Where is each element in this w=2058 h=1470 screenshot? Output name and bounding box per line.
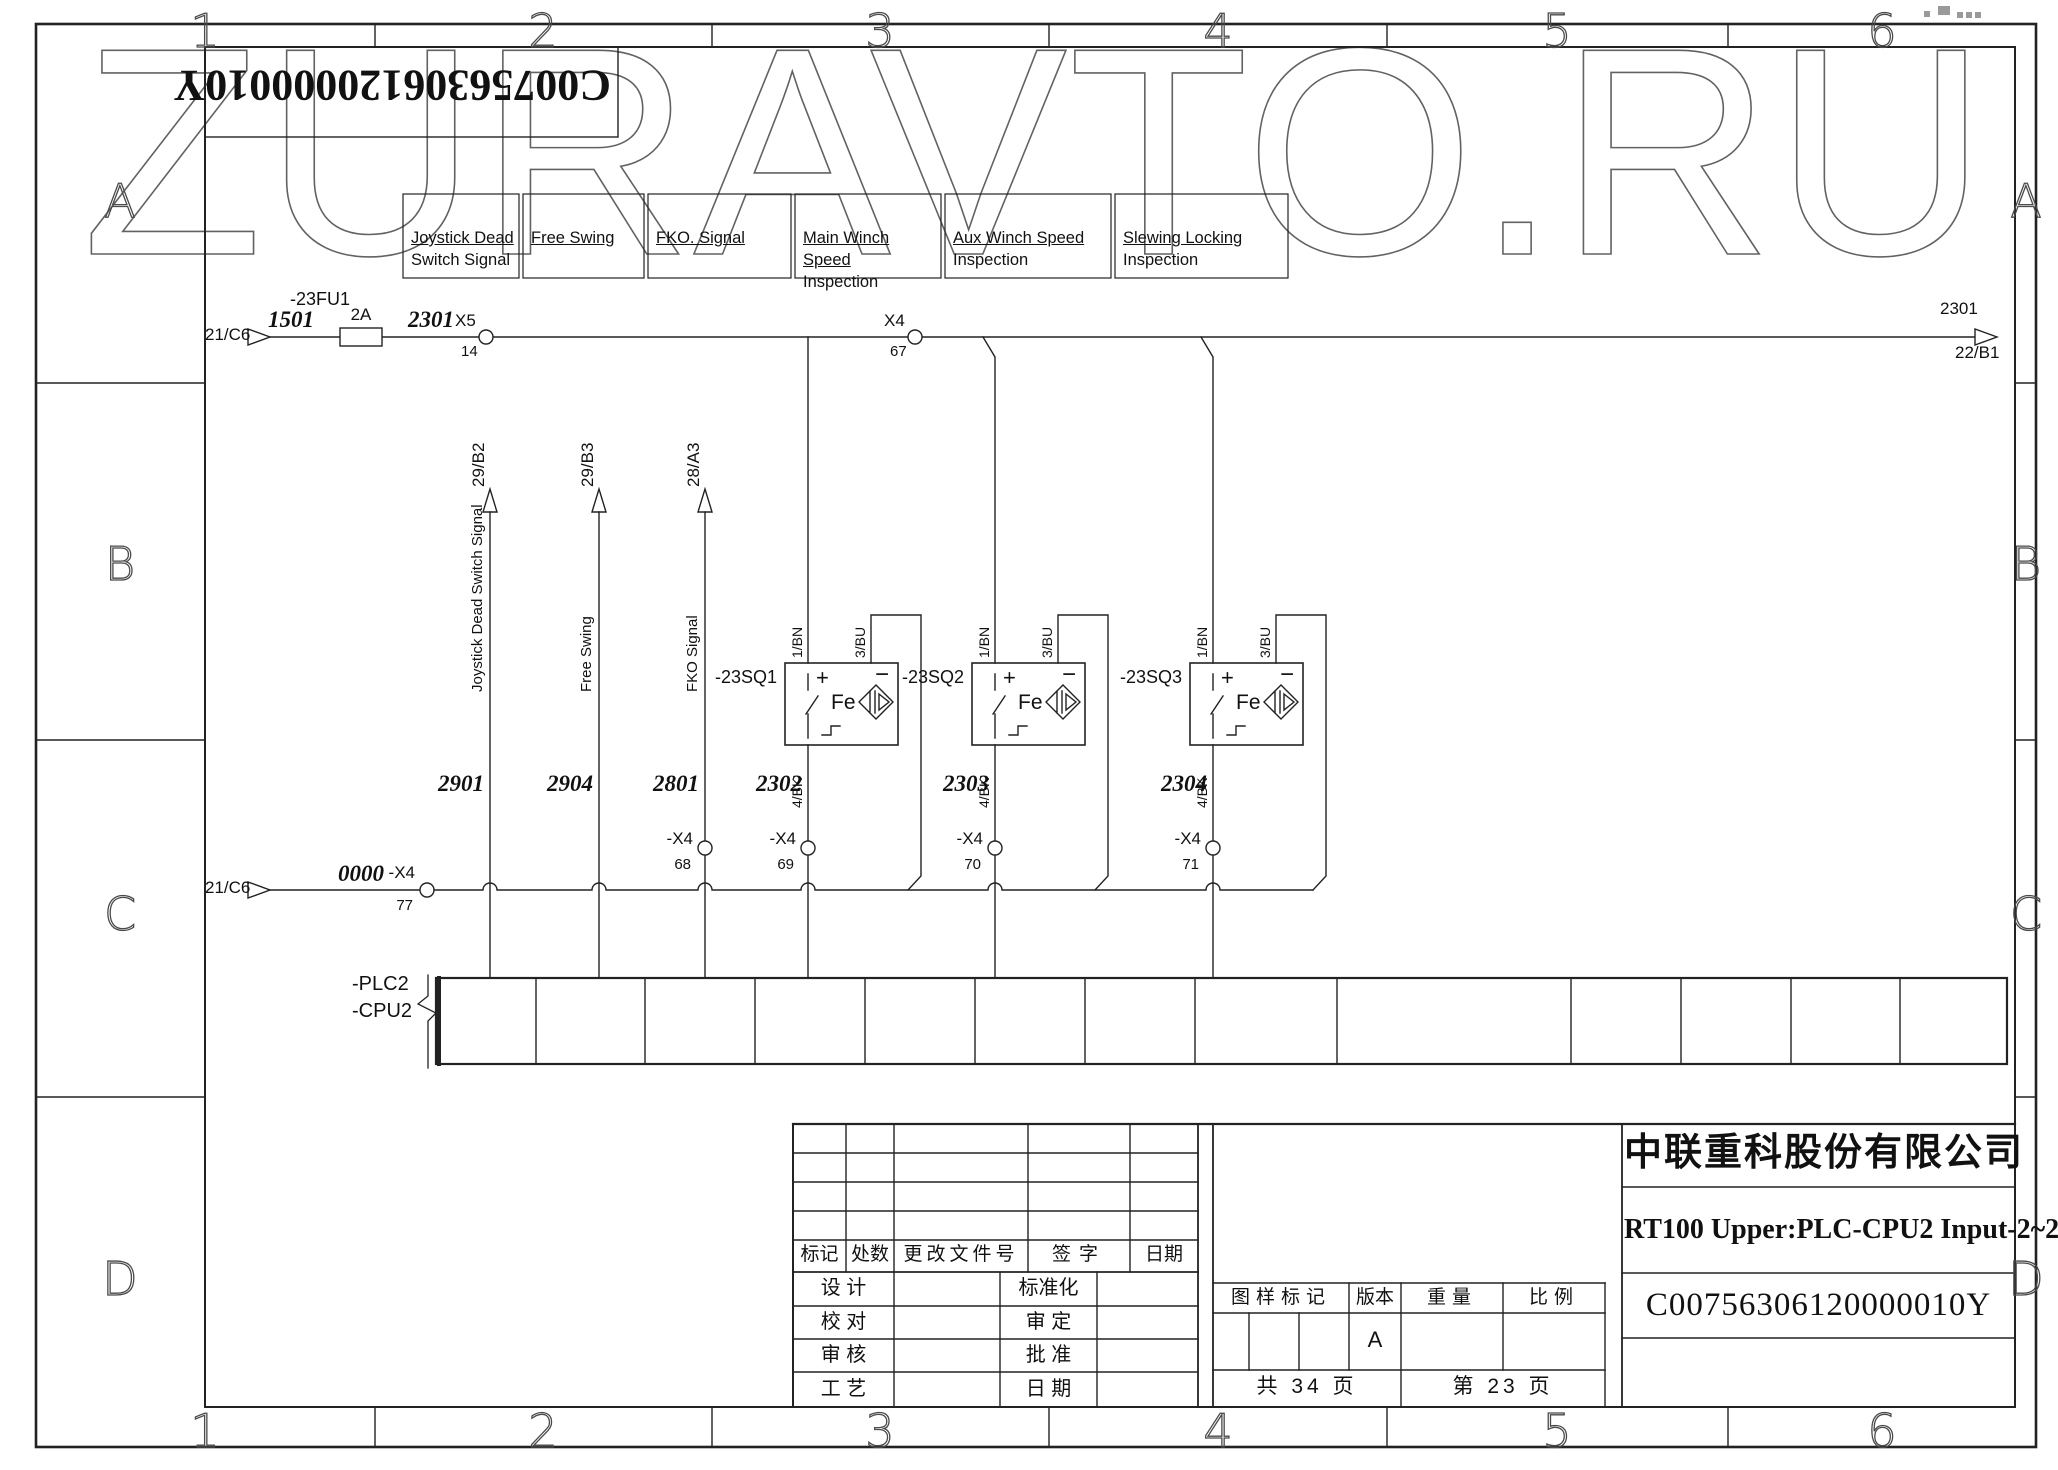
rev-header-date: 日期	[1130, 1245, 1198, 1265]
signal-box-main-winch: Main Winch Speed Inspection	[795, 194, 941, 293]
sensor2-minus: −	[1062, 662, 1076, 687]
col-ref-bottom-3: 3	[857, 1408, 903, 1454]
rev-header-sign: 签字	[1028, 1245, 1130, 1265]
branch-dest-28a3: 28/A3	[685, 443, 703, 487]
sensor1-bu: 3/BU	[853, 627, 868, 658]
conn-x4-77: -X4	[365, 864, 415, 882]
signal-box-aux-winch: Aux Winch Speed Inspection	[945, 194, 1111, 272]
sensor1-plus: +	[816, 666, 829, 689]
sign-design: 设 计	[793, 1278, 894, 1299]
cpu-tag: -CPU2	[352, 1001, 412, 1022]
branch-name-joystick: Joystick Dead Switch Signal	[470, 504, 486, 692]
wire-label-2301: 2301	[408, 308, 454, 332]
wire-label-2801: 2801	[629, 772, 699, 796]
row-ref-left-a: A	[96, 178, 144, 224]
col-ref-bottom-4: 4	[1195, 1408, 1241, 1454]
sign-ratify: 批 准	[1000, 1345, 1097, 1366]
drawing-number: C00756306120000010Y	[1624, 1288, 2013, 1323]
row-ref-right-b: B	[2002, 541, 2050, 587]
sensor2-bk: 4/BK	[977, 778, 992, 808]
conn-x4-69-pin: 69	[768, 857, 794, 873]
conn-x4-71-pin: 71	[1173, 857, 1199, 873]
schematic-sheet: ZURAVTO.RU	[0, 0, 2058, 1470]
mirrored-drawing-number: C00756306120000010Y	[213, 60, 611, 111]
signal-box-free-swing: Free Swing	[523, 194, 644, 250]
sensor3-plus: +	[1221, 666, 1234, 689]
stamp-weight-label: 重量	[1401, 1288, 1503, 1308]
connector-x4-67: X4	[884, 312, 905, 330]
wire-label-2901: 2901	[414, 772, 484, 796]
sensor3-core: Fe	[1236, 692, 1261, 714]
col-ref-top-2: 2	[520, 8, 566, 54]
conn-x4-68: -X4	[643, 830, 693, 848]
col-ref-bottom-6: 6	[1859, 1408, 1905, 1454]
row-ref-right-a: A	[2002, 178, 2050, 224]
sensor3-bu: 3/BU	[1258, 627, 1273, 658]
connector-x5-pin: 14	[461, 344, 478, 360]
rev-header-mark: 标记	[793, 1245, 846, 1265]
stamp-scale-label: 比例	[1503, 1288, 1605, 1308]
conn-x4-70-pin: 70	[955, 857, 981, 873]
sensor2-core: Fe	[1018, 692, 1043, 714]
stamp-mark-label: 图样标记	[1213, 1288, 1349, 1308]
signal-line2: Switch Signal	[411, 251, 510, 269]
row-ref-left-c: C	[96, 891, 144, 937]
rev-header-docno: 更改文件号	[894, 1245, 1028, 1265]
stamp-page-current: 第 23 页	[1401, 1376, 1605, 1398]
sign-date: 日 期	[1000, 1379, 1097, 1400]
signal-box-joystick: Joystick Dead Switch Signal	[403, 194, 519, 272]
col-ref-top-5: 5	[1534, 8, 1580, 54]
sign-standardize: 标准化	[1000, 1278, 1097, 1299]
sensor1-minus: −	[875, 662, 889, 687]
sensor2-bn: 1/BN	[977, 627, 992, 658]
conn-x4-68-pin: 68	[665, 857, 691, 873]
top-bus-left-ref: 21/C6	[205, 326, 250, 344]
conn-x4-71: -X4	[1151, 830, 1201, 848]
sign-check: 校 对	[793, 1312, 894, 1333]
sensor-tag-23sq3: -23SQ3	[1102, 668, 1182, 687]
sign-approve-review: 审 定	[1000, 1312, 1097, 1333]
sensor3-bn: 1/BN	[1195, 627, 1210, 658]
col-ref-bottom-1: 1	[182, 1408, 228, 1454]
fuse-rating: 2A	[340, 306, 382, 324]
sensor1-core: Fe	[831, 692, 856, 714]
sensor2-bu: 3/BU	[1040, 627, 1055, 658]
company-name: 中联重科股份有限公司	[1624, 1134, 2013, 1174]
sign-audit: 审 核	[793, 1345, 894, 1366]
stamp-version-label: 版本	[1349, 1288, 1401, 1308]
branch-dest-29b2: 29/B2	[470, 443, 488, 487]
col-ref-bottom-5: 5	[1534, 1408, 1580, 1454]
conn-x4-69: -X4	[746, 830, 796, 848]
wire-label-2904: 2904	[523, 772, 593, 796]
sensor-tag-23sq1: -23SQ1	[697, 668, 777, 687]
col-ref-bottom-2: 2	[520, 1408, 566, 1454]
row-ref-left-b: B	[96, 541, 144, 587]
rev-header-count: 处数	[846, 1245, 894, 1265]
col-ref-top-4: 4	[1195, 8, 1241, 54]
connector-x4-67-pin: 67	[890, 344, 907, 360]
col-ref-top-6: 6	[1859, 8, 1905, 54]
sensor1-bn: 1/BN	[790, 627, 805, 658]
top-bus-right-wire: 2301	[1940, 300, 1978, 318]
top-bus-right-ref: 22/B1	[1955, 344, 1999, 362]
plc-tag: -PLC2	[352, 974, 409, 995]
corner-marks	[1924, 6, 1981, 18]
stamp-version-value: A	[1349, 1328, 1401, 1351]
bottom-bus-left-ref: 21/C6	[205, 879, 250, 897]
sensor3-minus: −	[1280, 662, 1294, 687]
col-ref-top-1: 1	[182, 8, 228, 54]
conn-x4-70: -X4	[933, 830, 983, 848]
doc-title: RT100 Upper:PLC-CPU2 Input-2~2	[1624, 1215, 2013, 1244]
row-ref-left-d: D	[96, 1256, 144, 1302]
col-ref-top-3: 3	[857, 8, 903, 54]
signal-box-slewing: Slewing Locking Inspection	[1115, 194, 1288, 272]
sensor3-bk: 4/BK	[1195, 778, 1210, 808]
stamp-pages-total: 共 34 页	[1213, 1376, 1401, 1398]
wire-label-1501: 1501	[268, 308, 314, 332]
sensor1-bk: 4/BK	[790, 778, 805, 808]
sensor2-plus: +	[1003, 666, 1016, 689]
branch-name-free-swing: Free Swing	[579, 616, 595, 692]
conn-x4-77-pin: 77	[387, 898, 413, 914]
sensor-tag-23sq2: -23SQ2	[884, 668, 964, 687]
sign-process: 工 艺	[793, 1379, 894, 1400]
connector-x5: X5	[455, 312, 476, 330]
signal-box-fko: FKO. Signal	[648, 194, 791, 250]
signal-line1: Joystick Dead	[411, 229, 514, 247]
branch-dest-29b3: 29/B3	[579, 443, 597, 487]
row-ref-right-c: C	[2002, 891, 2050, 937]
